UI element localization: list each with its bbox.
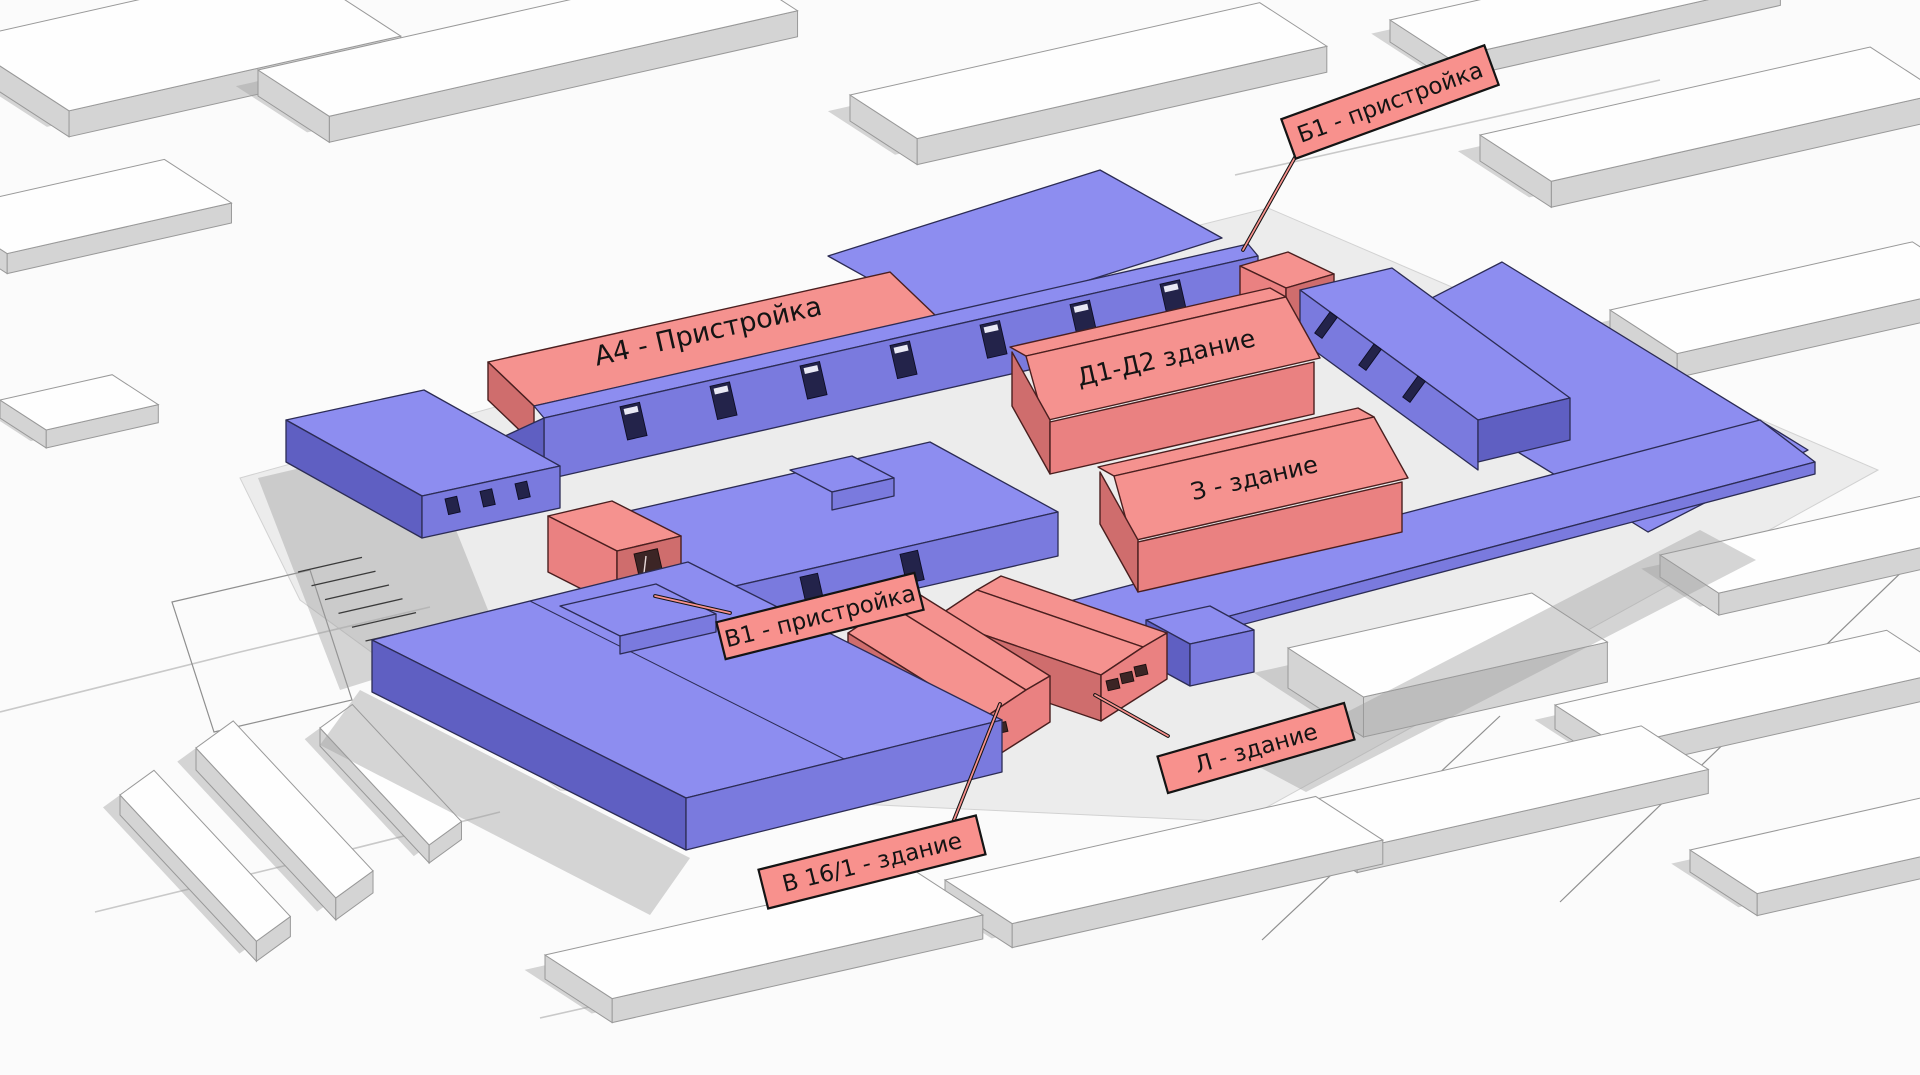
model-canvas[interactable]: А4 - Пристройка Д1-Д2 здание З - здание … [0, 0, 1920, 1075]
site-plan-3d-view[interactable]: А4 - Пристройка Д1-Д2 здание З - здание … [0, 0, 1920, 1075]
